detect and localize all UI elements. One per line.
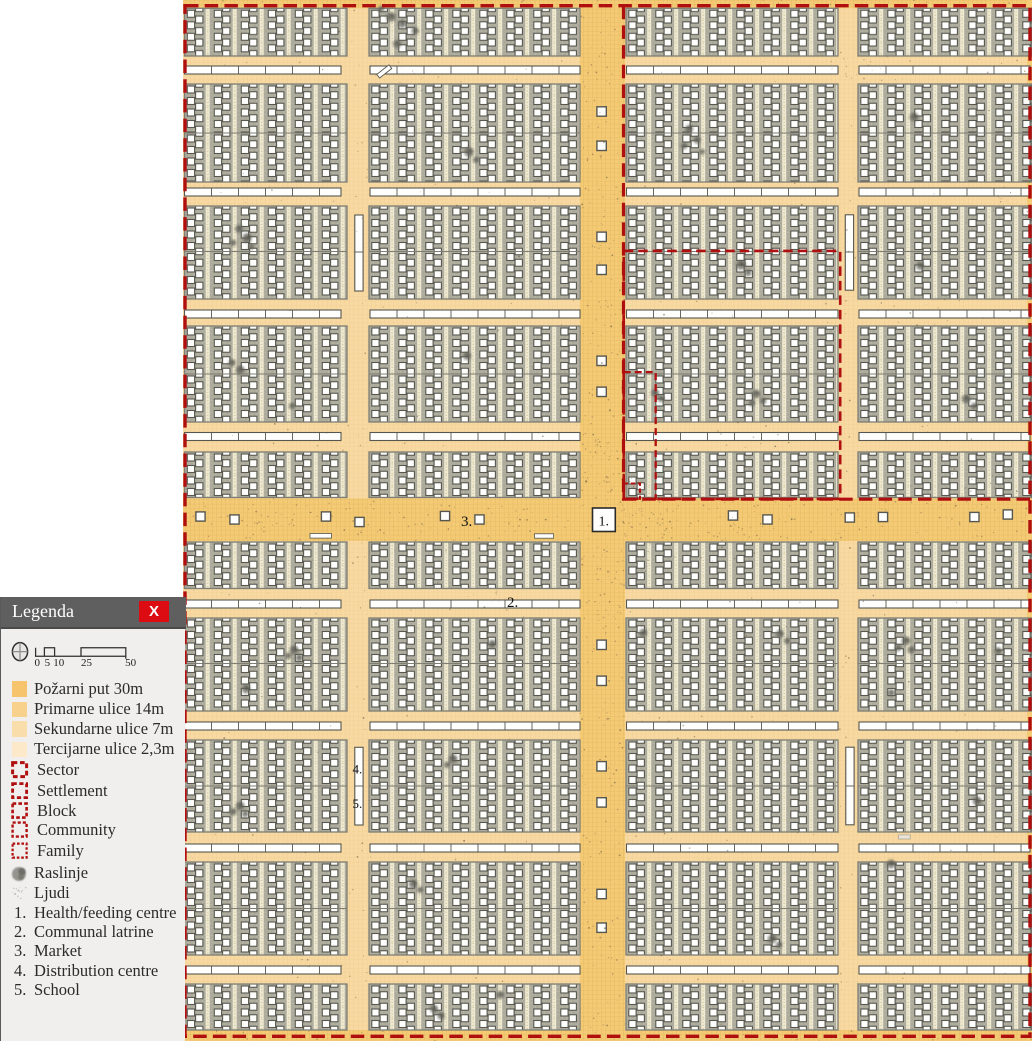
svg-text:2.: 2.	[507, 595, 518, 611]
svg-text:5: 5	[45, 657, 51, 669]
svg-text:1.: 1.	[599, 515, 610, 530]
svg-text:5.: 5.	[353, 796, 363, 811]
svg-text:0: 0	[34, 657, 40, 669]
svg-text:3.: 3.	[461, 514, 472, 530]
svg-text:10: 10	[53, 657, 65, 669]
svg-text:25: 25	[81, 657, 93, 669]
svg-text:4.: 4.	[353, 762, 363, 777]
svg-text:50: 50	[125, 657, 137, 669]
